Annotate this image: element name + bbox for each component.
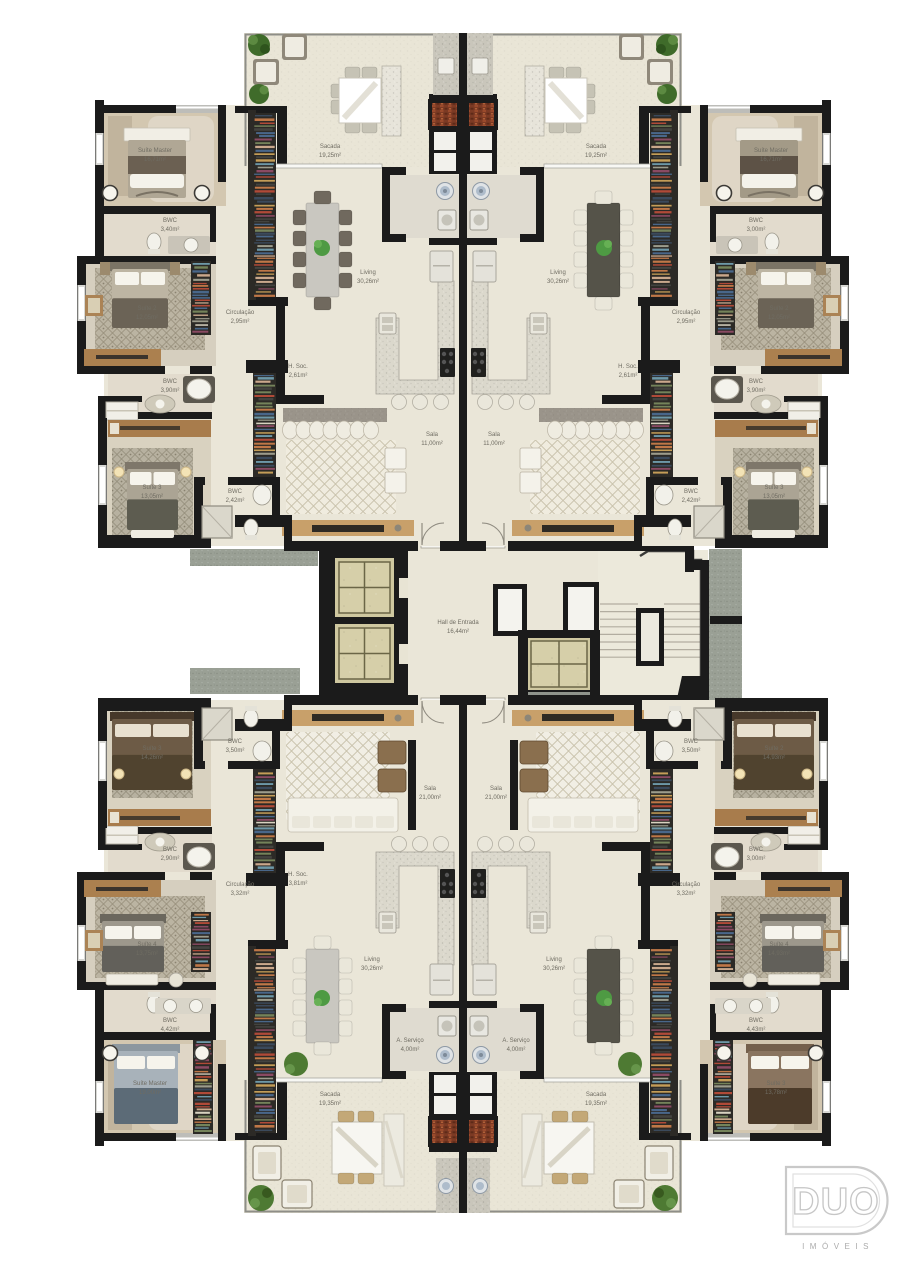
svg-text:Sacada: Sacada (320, 144, 341, 150)
svg-text:16,71m²: 16,71m² (760, 157, 782, 163)
svg-text:BWC: BWC (749, 379, 764, 385)
svg-text:11,00m²: 11,00m² (421, 441, 443, 447)
svg-text:Suíte 2: Suíte 2 (137, 306, 157, 312)
svg-text:2,90m²: 2,90m² (161, 856, 180, 862)
svg-text:12,05m²: 12,05m² (768, 315, 790, 321)
svg-text:Sacada: Sacada (586, 144, 607, 150)
svg-text:Hall de Entrada: Hall de Entrada (437, 620, 479, 626)
svg-text:A. Serviço: A. Serviço (502, 1038, 530, 1044)
svg-text:Sacada: Sacada (320, 1092, 341, 1098)
svg-text:Suíte Master: Suíte Master (138, 148, 172, 154)
svg-text:Suíte 4: Suíte 4 (769, 942, 789, 948)
svg-text:13,78m²: 13,78m² (765, 1090, 787, 1096)
svg-text:Sala: Sala (490, 786, 503, 792)
svg-text:Sacada: Sacada (586, 1092, 607, 1098)
svg-text:3,50m²: 3,50m² (226, 748, 245, 754)
svg-text:13,05m²: 13,05m² (141, 494, 163, 500)
svg-text:19,00m²: 19,00m² (139, 1090, 161, 1096)
svg-text:12,05m²: 12,05m² (136, 315, 158, 321)
svg-text:H. Soc.: H. Soc. (288, 872, 308, 878)
svg-text:19,25m²: 19,25m² (319, 153, 341, 159)
svg-text:2,95m²: 2,95m² (677, 319, 696, 325)
svg-text:14,93m²: 14,93m² (768, 951, 790, 957)
svg-text:21,00m²: 21,00m² (419, 795, 441, 801)
svg-text:13,75m²: 13,75m² (136, 951, 158, 957)
svg-text:3,90m²: 3,90m² (747, 388, 766, 394)
svg-text:3,32m²: 3,32m² (231, 891, 250, 897)
svg-text:H. Soc.: H. Soc. (288, 364, 308, 370)
svg-text:2,42m²: 2,42m² (682, 498, 701, 504)
svg-text:BWC: BWC (228, 489, 243, 495)
svg-text:Suíte 3: Suíte 3 (766, 1081, 786, 1087)
svg-text:30,26m²: 30,26m² (547, 279, 569, 285)
svg-text:16,44m²: 16,44m² (447, 629, 469, 635)
svg-text:Sala: Sala (488, 432, 501, 438)
svg-text:BWC: BWC (749, 847, 764, 853)
svg-text:Suíte Master: Suíte Master (133, 1081, 167, 1087)
svg-text:3,50m²: 3,50m² (682, 748, 701, 754)
svg-text:H. Soc.: H. Soc. (618, 364, 638, 370)
svg-text:3,40m²: 3,40m² (161, 227, 180, 233)
svg-text:Circulação: Circulação (672, 310, 701, 316)
svg-text:2,61m²: 2,61m² (289, 373, 308, 379)
svg-text:BWC: BWC (163, 218, 178, 224)
svg-text:Sala: Sala (424, 786, 437, 792)
svg-text:30,26m²: 30,26m² (361, 966, 383, 972)
svg-text:Circulação: Circulação (672, 882, 701, 888)
svg-text:13,05m²: 13,05m² (763, 494, 785, 500)
svg-text:Circulação: Circulação (226, 310, 255, 316)
svg-text:A. Serviço: A. Serviço (396, 1038, 424, 1044)
svg-text:BWC: BWC (163, 1018, 178, 1024)
svg-text:BWC: BWC (749, 1018, 764, 1024)
svg-text:21,00m²: 21,00m² (485, 795, 507, 801)
svg-text:DUO: DUO (792, 1181, 879, 1223)
svg-text:Suíte 2: Suíte 2 (764, 746, 784, 752)
svg-text:IMÓVEIS: IMÓVEIS (802, 1242, 874, 1251)
svg-text:16,71m²: 16,71m² (144, 157, 166, 163)
svg-text:4,43m²: 4,43m² (747, 1027, 766, 1033)
svg-text:30,26m²: 30,26m² (543, 966, 565, 972)
svg-text:Living: Living (550, 270, 566, 276)
svg-text:19,35m²: 19,35m² (319, 1101, 341, 1107)
svg-text:Sala: Sala (426, 432, 439, 438)
svg-text:4,00m²: 4,00m² (401, 1047, 420, 1053)
svg-text:BWC: BWC (684, 489, 699, 495)
svg-text:BWC: BWC (228, 739, 243, 745)
svg-text:4,00m²: 4,00m² (507, 1047, 526, 1053)
svg-text:3,32m²: 3,32m² (677, 891, 696, 897)
svg-text:Living: Living (360, 270, 376, 276)
svg-text:Suíte 2: Suíte 2 (769, 306, 789, 312)
svg-text:Suíte 3: Suíte 3 (764, 485, 784, 491)
svg-text:BWC: BWC (684, 739, 699, 745)
svg-text:3,00m²: 3,00m² (747, 227, 766, 233)
svg-text:14,93m²: 14,93m² (763, 755, 785, 761)
svg-text:3,81m²: 3,81m² (289, 881, 308, 887)
svg-text:Suíte 3: Suíte 3 (142, 746, 162, 752)
svg-text:4,42m²: 4,42m² (161, 1027, 180, 1033)
svg-text:30,26m²: 30,26m² (357, 279, 379, 285)
svg-text:2,42m²: 2,42m² (226, 498, 245, 504)
svg-text:Circulação: Circulação (226, 882, 255, 888)
svg-text:2,61m²: 2,61m² (619, 373, 638, 379)
svg-text:Living: Living (546, 957, 562, 963)
svg-text:19,35m²: 19,35m² (585, 1101, 607, 1107)
svg-text:Suíte 3: Suíte 3 (142, 485, 162, 491)
svg-text:BWC: BWC (163, 847, 178, 853)
svg-text:2,95m²: 2,95m² (231, 319, 250, 325)
svg-text:19,25m²: 19,25m² (585, 153, 607, 159)
svg-text:3,00m²: 3,00m² (747, 856, 766, 862)
svg-text:BWC: BWC (163, 379, 178, 385)
svg-text:BWC: BWC (749, 218, 764, 224)
svg-text:3,90m²: 3,90m² (161, 388, 180, 394)
svg-text:14,26m²: 14,26m² (141, 755, 163, 761)
svg-text:Suíte 4: Suíte 4 (137, 942, 157, 948)
svg-text:Living: Living (364, 957, 380, 963)
svg-text:Suíte Master: Suíte Master (754, 148, 788, 154)
svg-text:11,00m²: 11,00m² (483, 441, 505, 447)
